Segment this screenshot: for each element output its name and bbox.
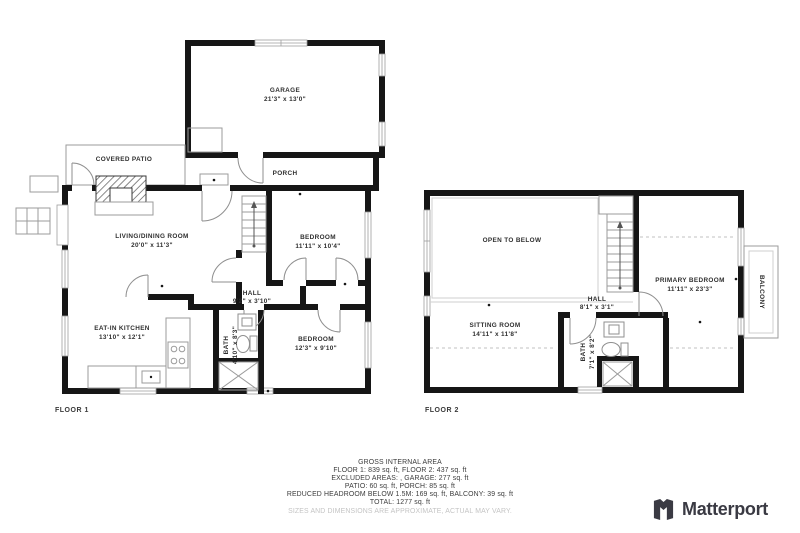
floor1-plan: GARAGE 21'3" x 13'0" COVERED PATIO PORCH… <box>16 40 385 394</box>
svg-text:BATH: BATH <box>223 336 230 355</box>
garage-window-right-1 <box>379 54 385 76</box>
stove-icon <box>168 342 188 368</box>
bedroom1-dims: 11'11" x 10'4" <box>295 243 340 250</box>
shower-icon <box>603 362 632 386</box>
toilet-tank-icon <box>250 336 257 351</box>
garage-porch-door-arc <box>238 158 263 183</box>
hall1-dims: 9'2" x 3'10" <box>233 298 271 305</box>
garage-window-top <box>255 40 307 46</box>
bath2-label: BATH 7'1" x 8'2" <box>580 335 596 369</box>
hall2-dims: 8'1" x 3'1" <box>580 304 614 311</box>
porch-name: PORCH <box>273 170 298 177</box>
garage-name: GARAGE <box>270 87 301 94</box>
svg-text:BATH: BATH <box>580 343 587 362</box>
svg-text:4'10" x 8'3": 4'10" x 8'3" <box>232 326 239 364</box>
living-dining-name: LIVING/DINING ROOM <box>115 233 188 240</box>
floor2-interior-walls <box>558 190 669 387</box>
floorplan-canvas: GARAGE 21'3" x 13'0" COVERED PATIO PORCH… <box>0 0 800 533</box>
porch-right-wall <box>373 158 379 185</box>
footer-line-patio-porch: PATIO: 60 sq. ft, PORCH: 85 sq. ft <box>0 483 800 491</box>
stairs-floor2 <box>599 196 633 292</box>
patio-step <box>30 176 58 192</box>
bay-window <box>16 205 68 245</box>
footer-line-title: GROSS INTERNAL AREA <box>0 459 800 467</box>
toilet-tank-icon <box>621 343 628 356</box>
primary-bedroom-name: PRIMARY BEDROOM <box>655 277 725 284</box>
primary-bedroom-dims: 11'11" x 23'3" <box>667 286 712 293</box>
garage-walls <box>185 40 385 183</box>
garage-dims: 21'3" x 13'0" <box>264 96 306 103</box>
stairs-floor1 <box>242 196 266 252</box>
floor2-plan: OPEN TO BELOW PRIMARY BEDROOM 11'11" x 2… <box>424 190 778 393</box>
toilet-icon <box>602 343 620 357</box>
patio-door-arc <box>72 163 94 185</box>
svg-text:BALCONY: BALCONY <box>758 275 765 309</box>
hall1-name: HALL <box>243 290 261 297</box>
kitchen-dims: 13'10" x 12'1" <box>99 334 145 341</box>
hall2-name: HALL <box>588 296 606 303</box>
fireplace <box>95 176 153 215</box>
footer-line-floors: FLOOR 1: 839 sq. ft, FLOOR 2: 437 sq. ft <box>0 467 800 475</box>
garage-corner-closet <box>188 128 222 152</box>
sitting-room-name: SITTING ROOM <box>469 322 520 329</box>
bedroom2-dims: 12'3" x 9'10" <box>295 345 337 352</box>
floor2-caption: FLOOR 2 <box>425 407 459 414</box>
bedroom2-name: BEDROOM <box>298 336 334 343</box>
garage-window-right-2 <box>379 122 385 146</box>
sitting-room-dims: 14'11" x 11'8" <box>472 331 517 338</box>
bath2-fixtures <box>602 322 632 386</box>
svg-text:7'1" x 8'2": 7'1" x 8'2" <box>589 335 596 369</box>
matterport-m-icon <box>652 498 675 521</box>
open-to-below-name: OPEN TO BELOW <box>483 237 542 244</box>
kitchen-name: EAT-IN KITCHEN <box>94 325 150 332</box>
kitchen-cabinet <box>88 366 136 388</box>
floor1-caption: FLOOR 1 <box>55 407 89 414</box>
covered-patio-name: COVERED PATIO <box>96 156 153 163</box>
footer-line-excluded: EXCLUDED AREAS: , GARAGE: 277 sq. ft <box>0 475 800 483</box>
bedroom1-name: BEDROOM <box>300 234 336 241</box>
matterport-logo: Matterport <box>652 498 768 521</box>
kitchen-counter <box>166 318 190 388</box>
balcony-label: BALCONY <box>758 275 765 309</box>
shower-icon <box>219 362 258 390</box>
living-dining-dims: 20'0" x 11'3" <box>131 242 173 249</box>
matterport-wordmark: Matterport <box>682 499 768 520</box>
